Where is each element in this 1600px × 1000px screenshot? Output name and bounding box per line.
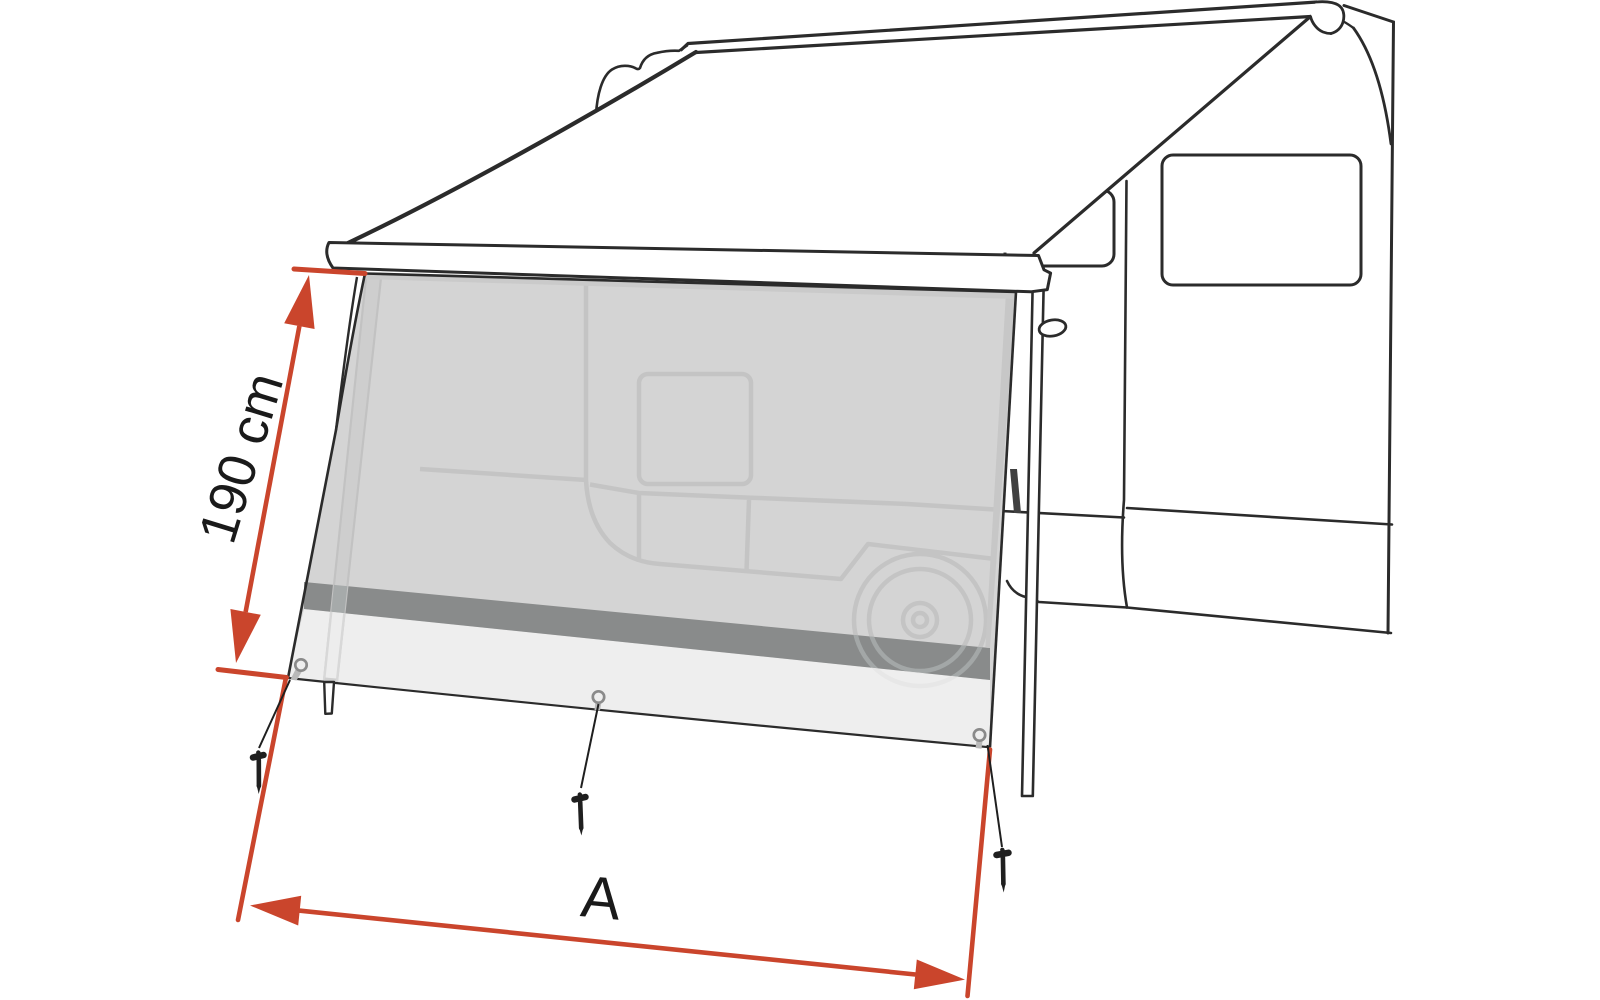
svg-text:A: A: [578, 863, 624, 933]
